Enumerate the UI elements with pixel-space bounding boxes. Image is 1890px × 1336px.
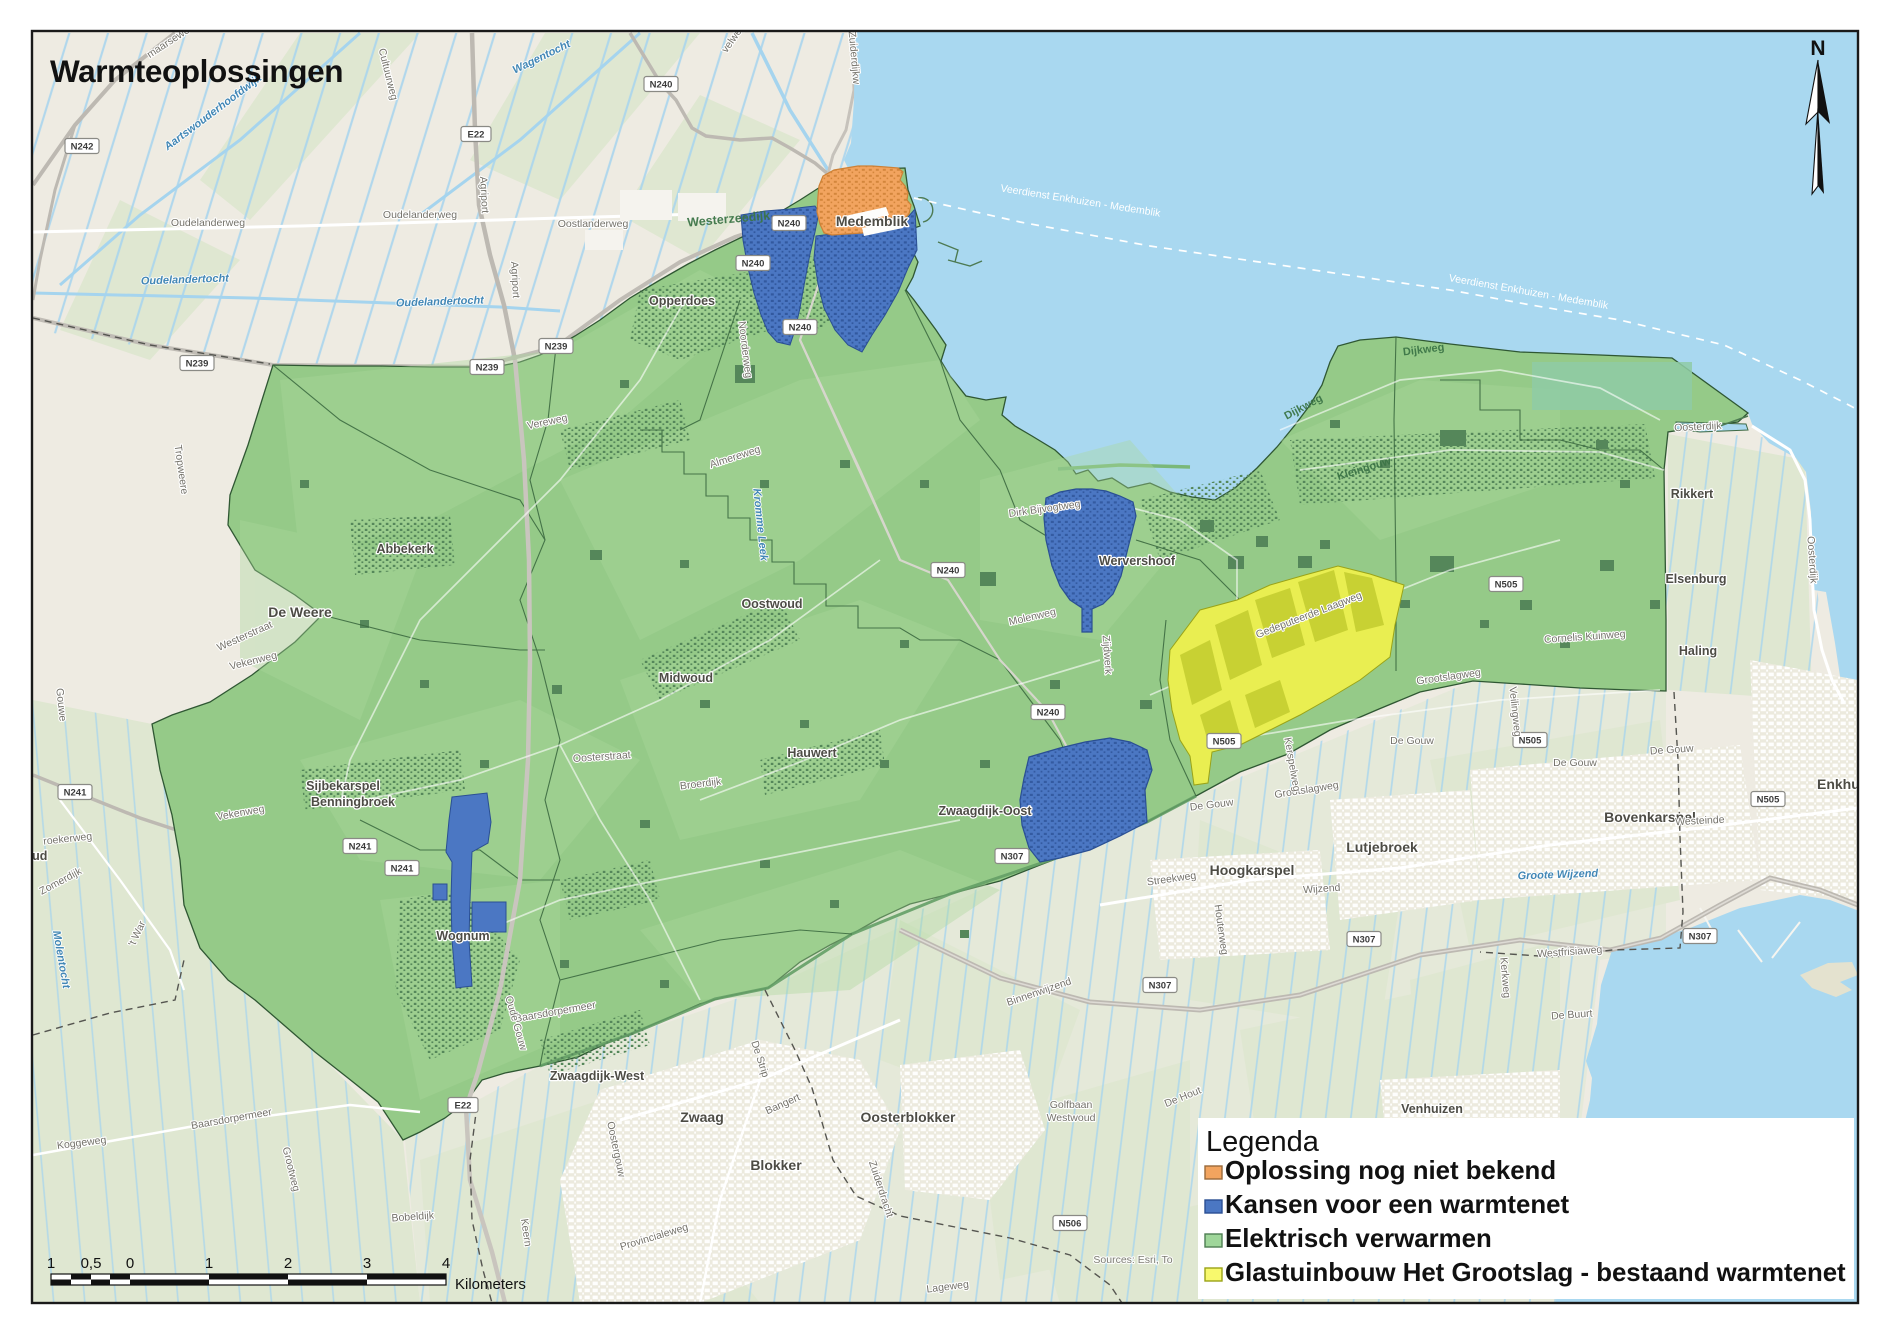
- svg-text:N241: N241: [64, 788, 87, 799]
- svg-text:Zwaagdijk-West: Zwaagdijk-West: [550, 1069, 645, 1083]
- svg-text:N505: N505: [1213, 737, 1236, 748]
- svg-text:1: 1: [47, 1255, 55, 1272]
- svg-text:4: 4: [442, 1255, 450, 1272]
- svg-text:E22: E22: [468, 130, 485, 141]
- svg-text:N240: N240: [1037, 708, 1060, 719]
- svg-text:N239: N239: [545, 342, 568, 353]
- svg-text:Sources: Esri, To: Sources: Esri, To: [1093, 1254, 1172, 1266]
- svg-text:Wognum: Wognum: [436, 929, 489, 943]
- svg-text:1: 1: [205, 1255, 213, 1272]
- svg-text:Benningbroek: Benningbroek: [311, 795, 395, 809]
- svg-text:De Gouw: De Gouw: [1553, 757, 1597, 769]
- svg-text:N241: N241: [349, 842, 372, 853]
- svg-text:N240: N240: [789, 323, 812, 334]
- svg-text:Sijbekarspel: Sijbekarspel: [306, 779, 380, 793]
- svg-text:Opperdoes: Opperdoes: [649, 294, 715, 308]
- svg-text:De Gouw: De Gouw: [1390, 735, 1434, 747]
- svg-text:N505: N505: [1757, 795, 1780, 806]
- svg-text:Haling: Haling: [1679, 644, 1717, 658]
- svg-text:N239: N239: [476, 363, 499, 374]
- svg-text:Zwaag: Zwaag: [680, 1109, 724, 1125]
- svg-text:Glastuinbouw Het Grootslag - b: Glastuinbouw Het Grootslag - bestaand wa…: [1225, 1259, 1846, 1287]
- svg-text:Oostwoud: Oostwoud: [741, 597, 802, 611]
- svg-text:N240: N240: [778, 219, 801, 230]
- svg-text:Hoogkarspel: Hoogkarspel: [1210, 862, 1295, 878]
- svg-text:3: 3: [363, 1255, 371, 1272]
- svg-text:Elektrisch verwarmen: Elektrisch verwarmen: [1225, 1225, 1492, 1253]
- svg-text:N: N: [1810, 37, 1825, 60]
- svg-text:Midwoud: Midwoud: [659, 671, 713, 685]
- svg-text:Westwoud: Westwoud: [1047, 1112, 1096, 1124]
- svg-text:N307: N307: [1149, 981, 1172, 992]
- svg-text:Legenda: Legenda: [1206, 1126, 1320, 1158]
- svg-text:N242: N242: [71, 142, 94, 153]
- svg-text:N307: N307: [1001, 852, 1024, 863]
- svg-text:N239: N239: [186, 359, 209, 370]
- svg-text:Oosterblokker: Oosterblokker: [861, 1109, 956, 1125]
- svg-text:0: 0: [126, 1255, 134, 1272]
- svg-text:Medemblik: Medemblik: [836, 213, 909, 229]
- svg-text:De Weere: De Weere: [268, 604, 332, 620]
- svg-text:Hauwert: Hauwert: [787, 746, 837, 760]
- svg-text:Elsenburg: Elsenburg: [1665, 572, 1726, 586]
- svg-text:E22: E22: [455, 1101, 472, 1112]
- svg-text:N240: N240: [937, 566, 960, 577]
- svg-text:Warmteoplossingen: Warmteoplossingen: [50, 53, 343, 89]
- svg-text:Oostlanderweg: Oostlanderweg: [558, 218, 629, 230]
- svg-text:N307: N307: [1689, 932, 1712, 943]
- svg-text:0,5: 0,5: [81, 1255, 102, 1272]
- svg-text:Agriport: Agriport: [508, 261, 522, 298]
- svg-text:Lutjebroek: Lutjebroek: [1346, 839, 1418, 855]
- svg-text:Rikkert: Rikkert: [1671, 487, 1714, 501]
- svg-text:2: 2: [284, 1255, 292, 1272]
- svg-text:Abbekerk: Abbekerk: [377, 542, 434, 556]
- svg-text:Oplossing nog niet bekend: Oplossing nog niet bekend: [1225, 1157, 1556, 1185]
- svg-text:Oudelanderweg: Oudelanderweg: [383, 209, 457, 221]
- svg-text:N506: N506: [1059, 1219, 1082, 1230]
- svg-text:N505: N505: [1495, 580, 1518, 591]
- svg-text:N240: N240: [742, 259, 765, 270]
- svg-text:Kansen voor een warmtenet: Kansen voor een warmtenet: [1225, 1191, 1569, 1219]
- svg-text:Kilometers: Kilometers: [455, 1276, 526, 1293]
- svg-text:N240: N240: [650, 80, 673, 91]
- svg-text:Golfbaan: Golfbaan: [1050, 1099, 1093, 1111]
- svg-text:Blokker: Blokker: [750, 1157, 802, 1173]
- svg-text:Oosterdijk: Oosterdijk: [1674, 420, 1723, 434]
- svg-text:N241: N241: [391, 864, 414, 875]
- svg-text:Oudelanderweg: Oudelanderweg: [171, 217, 245, 229]
- svg-text:N505: N505: [1519, 736, 1542, 747]
- svg-text:N307: N307: [1353, 935, 1376, 946]
- svg-text:Wervershoof: Wervershoof: [1099, 554, 1176, 568]
- svg-text:Agriport: Agriport: [477, 176, 491, 213]
- svg-text:Zwaagdijk-Oost: Zwaagdijk-Oost: [938, 804, 1032, 818]
- svg-text:Venhuizen: Venhuizen: [1401, 1102, 1463, 1116]
